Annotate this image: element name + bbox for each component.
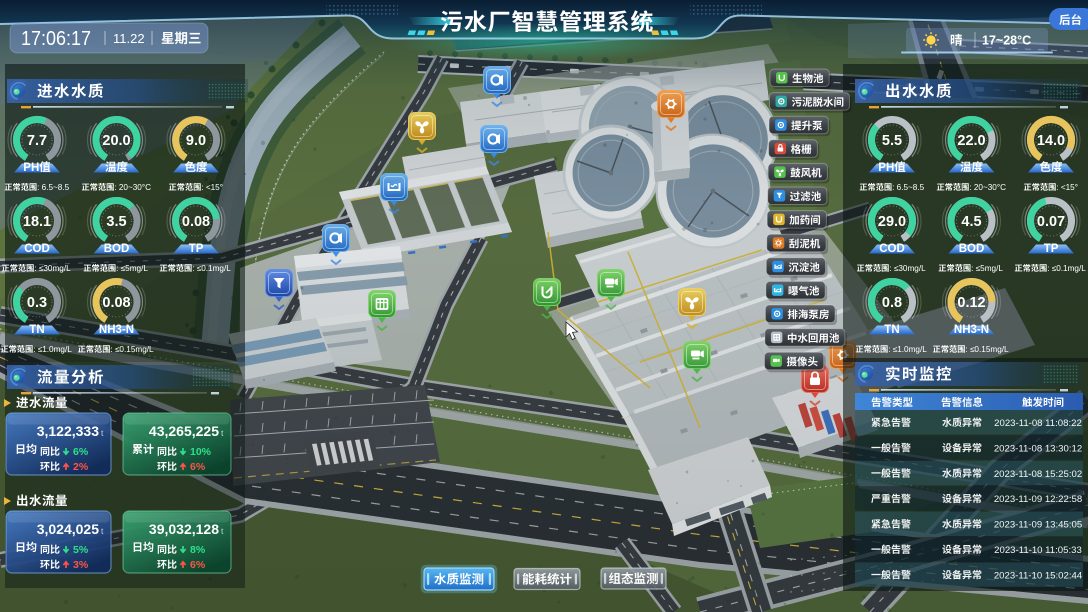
svg-text:6%: 6% bbox=[190, 461, 206, 473]
svg-text:NH3-N: NH3-N bbox=[99, 324, 134, 336]
svg-text:: 6.5~8.5: : 6.5~8.5 bbox=[892, 183, 925, 192]
svg-text:3,024,025: 3,024,025 bbox=[37, 521, 99, 537]
svg-text:29.0: 29.0 bbox=[878, 214, 906, 230]
svg-text:20.0: 20.0 bbox=[102, 133, 130, 149]
svg-text:PH: PH bbox=[878, 162, 894, 174]
svg-text:2023-11-08 15:25:02: 2023-11-08 15:25:02 bbox=[994, 469, 1082, 480]
svg-text:TN: TN bbox=[884, 324, 899, 336]
svg-text:TP: TP bbox=[189, 243, 204, 255]
svg-text:2%: 2% bbox=[73, 461, 89, 473]
svg-text:BOD: BOD bbox=[104, 243, 130, 255]
svg-text:2023-11-10 15:02:44: 2023-11-10 15:02:44 bbox=[994, 570, 1083, 581]
svg-text:4.5: 4.5 bbox=[961, 214, 981, 230]
svg-text:TP: TP bbox=[1044, 243, 1059, 255]
svg-text:0.8: 0.8 bbox=[882, 295, 902, 311]
svg-text:6%: 6% bbox=[73, 446, 89, 458]
svg-text:18.1: 18.1 bbox=[23, 214, 51, 230]
svg-text:8%: 8% bbox=[190, 544, 206, 556]
svg-text:3,122,333: 3,122,333 bbox=[37, 423, 99, 439]
svg-text:3.5: 3.5 bbox=[106, 214, 126, 230]
svg-text:COD: COD bbox=[24, 243, 50, 255]
svg-text:: 6.5~8.5: : 6.5~8.5 bbox=[37, 183, 70, 192]
svg-text:9.0: 9.0 bbox=[186, 133, 206, 149]
svg-text:: <15°: : <15° bbox=[1056, 183, 1078, 192]
svg-text:0.08: 0.08 bbox=[182, 214, 210, 230]
svg-text:2023-11-08 13:30:12: 2023-11-08 13:30:12 bbox=[994, 443, 1082, 454]
svg-text:17~28°C: 17~28°C bbox=[982, 34, 1031, 48]
svg-text:: ≤1.0mg/L: : ≤1.0mg/L bbox=[33, 345, 72, 354]
svg-text:10%: 10% bbox=[190, 446, 212, 458]
svg-text:7.7: 7.7 bbox=[27, 133, 47, 149]
svg-text:22.0: 22.0 bbox=[957, 133, 985, 149]
svg-text:2023-11-08 11:08:22: 2023-11-08 11:08:22 bbox=[994, 418, 1082, 429]
svg-text:: ≤0.15mg/L: : ≤0.15mg/L bbox=[965, 345, 1009, 354]
svg-text:6%: 6% bbox=[190, 559, 206, 571]
svg-text:0.08: 0.08 bbox=[102, 295, 130, 311]
svg-text:: ≤5mg/L: : ≤5mg/L bbox=[971, 264, 1003, 273]
svg-text:14.0: 14.0 bbox=[1037, 133, 1065, 149]
svg-text:2023-11-10 11:05:33: 2023-11-10 11:05:33 bbox=[994, 545, 1082, 556]
svg-text:BOD: BOD bbox=[959, 243, 985, 255]
svg-text:: 20~30°C: : 20~30°C bbox=[114, 183, 151, 192]
svg-text:2023-11-09 13:45:05: 2023-11-09 13:45:05 bbox=[994, 520, 1082, 531]
svg-text:0.3: 0.3 bbox=[27, 295, 47, 311]
svg-text:43,265,225: 43,265,225 bbox=[149, 423, 219, 439]
svg-text:5%: 5% bbox=[73, 544, 89, 556]
svg-text:3%: 3% bbox=[73, 559, 89, 571]
svg-text:17:06:17: 17:06:17 bbox=[21, 27, 91, 50]
svg-text:: ≤30mg/L: : ≤30mg/L bbox=[889, 264, 926, 273]
svg-text:: ≤0.1mg/L: : ≤0.1mg/L bbox=[1047, 264, 1086, 273]
svg-text:TN: TN bbox=[29, 324, 44, 336]
svg-text:: 20~30°C: : 20~30°C bbox=[969, 183, 1006, 192]
svg-text:NH3-N: NH3-N bbox=[954, 324, 989, 336]
svg-text:: ≤1.0mg/L: : ≤1.0mg/L bbox=[888, 345, 927, 354]
svg-text:11.22: 11.22 bbox=[113, 31, 145, 46]
svg-text:: <15°: : <15° bbox=[201, 183, 223, 192]
svg-text:39,032,128: 39,032,128 bbox=[149, 521, 219, 537]
svg-text:0.07: 0.07 bbox=[1037, 214, 1065, 230]
svg-text:: ≤0.1mg/L: : ≤0.1mg/L bbox=[192, 264, 231, 273]
svg-text:: ≤5mg/L: : ≤5mg/L bbox=[116, 264, 148, 273]
svg-text:: ≤30mg/L: : ≤30mg/L bbox=[34, 264, 71, 273]
svg-text:2023-11-09 12:22:58: 2023-11-09 12:22:58 bbox=[994, 494, 1082, 505]
svg-text:COD: COD bbox=[879, 243, 905, 255]
svg-text:5.5: 5.5 bbox=[882, 133, 902, 149]
svg-text:PH: PH bbox=[23, 162, 39, 174]
svg-text:0.12: 0.12 bbox=[957, 295, 985, 311]
svg-text:: ≤0.15mg/L: : ≤0.15mg/L bbox=[110, 345, 154, 354]
